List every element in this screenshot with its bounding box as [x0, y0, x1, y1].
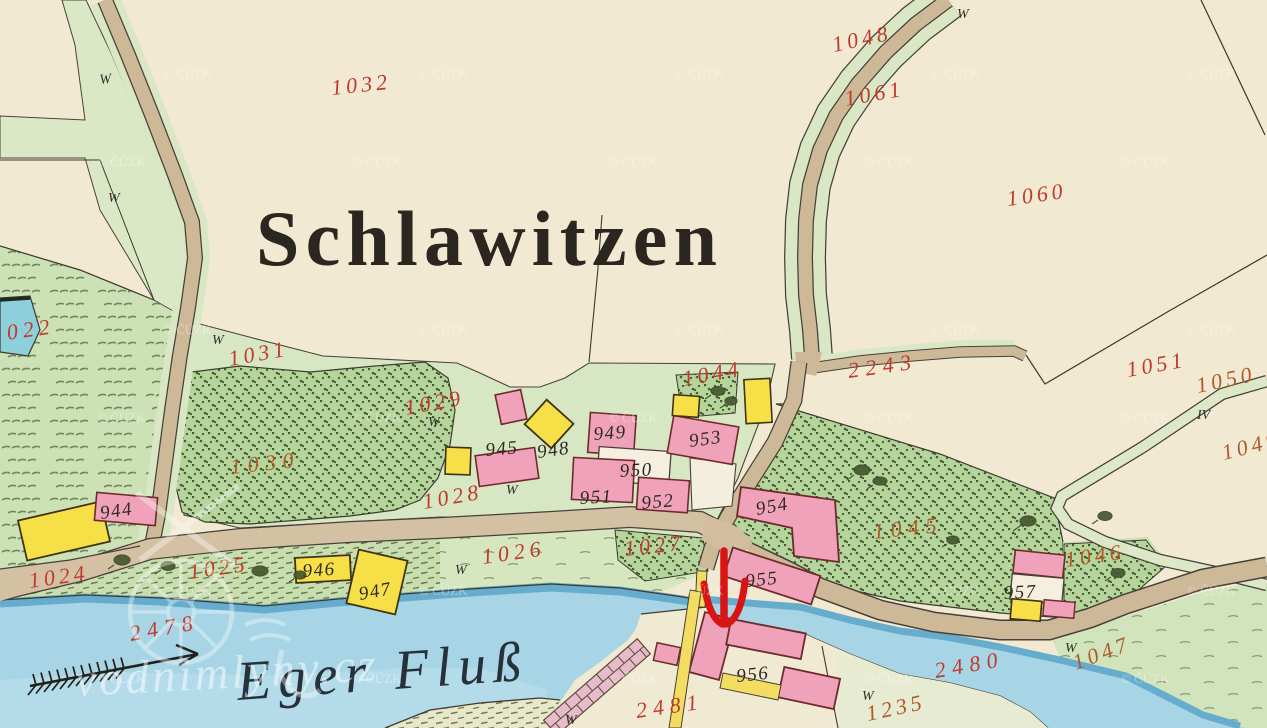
svg-text:© ČÚZK: © ČÚZK [97, 410, 146, 425]
svg-text:946: 946 [302, 559, 336, 582]
svg-text:© ČÚZK: © ČÚZK [1187, 66, 1236, 81]
svg-text:© ČÚZK: © ČÚZK [1187, 583, 1236, 598]
svg-text:© ČÚZK: © ČÚZK [931, 583, 980, 598]
svg-text:952: 952 [641, 490, 676, 514]
svg-text:951: 951 [579, 486, 613, 509]
svg-text:945: 945 [485, 437, 520, 461]
svg-text:© ČÚZK: © ČÚZK [1187, 322, 1236, 337]
svg-text:W: W [455, 563, 468, 578]
svg-text:© ČÚZK: © ČÚZK [353, 154, 402, 169]
svg-text:957: 957 [1003, 581, 1037, 604]
svg-text:© ČÚZK: © ČÚZK [609, 154, 658, 169]
svg-text:© ČÚZK: © ČÚZK [675, 583, 724, 598]
svg-text:© ČÚZK: © ČÚZK [675, 66, 724, 81]
svg-text:© ČÚZK: © ČÚZK [931, 66, 980, 81]
svg-text:W: W [506, 483, 519, 498]
svg-text:© ČÚZK: © ČÚZK [1121, 671, 1170, 686]
svg-text:W: W [212, 333, 225, 348]
svg-text:© ČÚZK: © ČÚZK [419, 583, 468, 598]
svg-text:© ČÚZK: © ČÚZK [1121, 154, 1170, 169]
svg-text:© ČÚZK: © ČÚZK [163, 322, 212, 337]
svg-text:W: W [957, 7, 970, 22]
svg-text:© ČÚZK: © ČÚZK [865, 410, 914, 425]
svg-text:© ČÚZK: © ČÚZK [97, 154, 146, 169]
svg-text:950: 950 [619, 459, 653, 482]
svg-text:956: 956 [735, 663, 770, 687]
svg-text:955: 955 [744, 568, 779, 592]
svg-text:© ČÚZK: © ČÚZK [865, 671, 914, 686]
svg-text:Schlawitzen: Schlawitzen [256, 195, 718, 282]
svg-text:W: W [428, 415, 441, 430]
svg-text:© ČÚZK: © ČÚZK [419, 322, 468, 337]
svg-text:© ČÚZK: © ČÚZK [353, 410, 402, 425]
svg-text:IV: IV [1196, 408, 1212, 423]
svg-text:© ČÚZK: © ČÚZK [1121, 410, 1170, 425]
svg-text:© ČÚZK: © ČÚZK [163, 66, 212, 81]
svg-text:© ČÚZK: © ČÚZK [419, 66, 468, 81]
svg-text:W: W [565, 713, 578, 728]
svg-text:W: W [108, 191, 121, 206]
svg-text:© ČÚZK: © ČÚZK [865, 154, 914, 169]
svg-text:949: 949 [593, 422, 627, 445]
svg-text:© ČÚZK: © ČÚZK [675, 322, 724, 337]
svg-text:© ČÚZK: © ČÚZK [609, 410, 658, 425]
svg-text:© ČÚZK: © ČÚZK [931, 322, 980, 337]
svg-text:© ČÚZK: © ČÚZK [609, 671, 658, 686]
